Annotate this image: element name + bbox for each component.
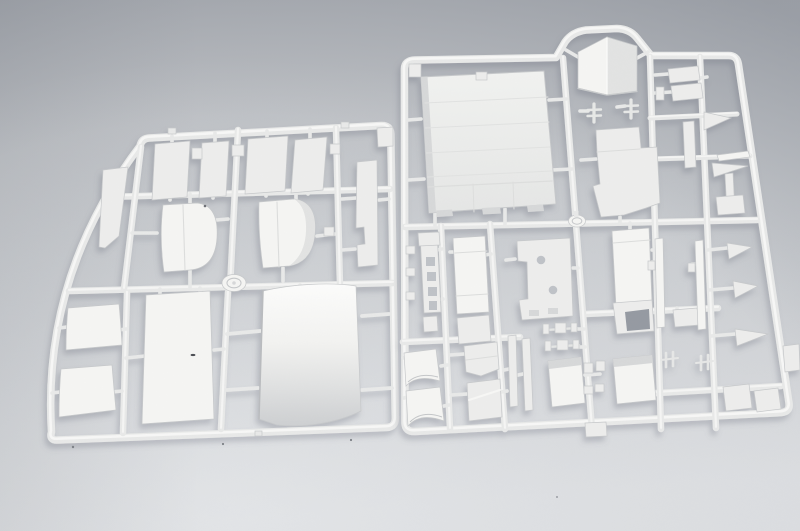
film-grain-overlay xyxy=(0,0,800,531)
scene-svg xyxy=(0,0,800,531)
photo-stage xyxy=(0,0,800,531)
